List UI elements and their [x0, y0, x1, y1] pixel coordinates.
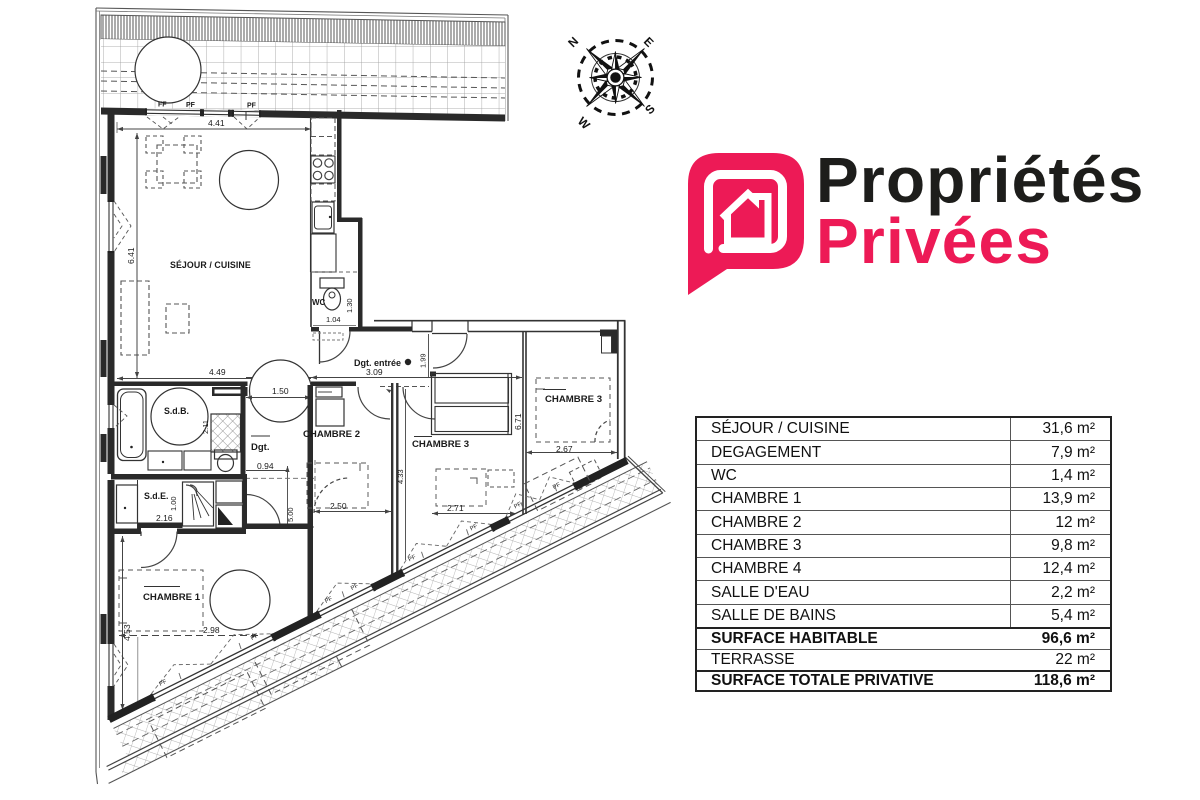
- svg-text:3.09: 3.09: [366, 367, 383, 377]
- svg-text:FF: FF: [158, 102, 167, 109]
- svg-text:CHAMBRE 3: CHAMBRE 3: [545, 394, 602, 405]
- svg-text:2.71: 2.71: [447, 503, 464, 513]
- svg-text:1.30: 1.30: [345, 298, 354, 313]
- svg-text:PF: PF: [469, 523, 479, 532]
- svg-text:4.49: 4.49: [209, 367, 226, 377]
- svg-text:6.71: 6.71: [513, 413, 523, 430]
- svg-text:PF: PF: [250, 633, 260, 642]
- svg-text:PF: PF: [324, 596, 334, 605]
- svg-text:2.67: 2.67: [556, 444, 573, 454]
- svg-text:PF: PF: [158, 679, 168, 688]
- svg-text:W: W: [575, 114, 593, 132]
- svg-text:PF: PF: [513, 501, 523, 510]
- svg-text:SÉJOUR / CUISINE: SÉJOUR / CUISINE: [170, 260, 251, 270]
- svg-text:N: N: [565, 34, 581, 50]
- svg-text:PF: PF: [186, 102, 196, 109]
- svg-text:E: E: [641, 34, 657, 50]
- svg-text:2.50: 2.50: [330, 501, 347, 511]
- svg-text:0.94: 0.94: [257, 461, 274, 471]
- svg-text:PF: PF: [247, 103, 257, 110]
- svg-text:4.33: 4.33: [396, 469, 405, 484]
- svg-text:CHAMBRE 1: CHAMBRE 1: [143, 592, 201, 603]
- svg-text:CHAMBRE 2: CHAMBRE 2: [303, 429, 360, 440]
- svg-text:1.50: 1.50: [272, 386, 289, 396]
- svg-text:5.00: 5.00: [286, 507, 295, 522]
- svg-text:4.41: 4.41: [208, 118, 225, 128]
- svg-text:1.00: 1.00: [169, 496, 178, 511]
- svg-text:S.d.E.: S.d.E.: [144, 491, 168, 501]
- svg-text:6.41: 6.41: [126, 247, 136, 264]
- svg-text:4.53: 4.53: [122, 624, 132, 641]
- svg-text:2.98: 2.98: [203, 625, 220, 635]
- svg-text:1.99: 1.99: [419, 353, 428, 368]
- svg-text:S: S: [642, 102, 658, 118]
- svg-text:WC: WC: [312, 298, 326, 307]
- svg-text:S.d.B.: S.d.B.: [164, 406, 189, 416]
- svg-text:Dgt.: Dgt.: [251, 442, 269, 453]
- svg-text:PF: PF: [552, 482, 562, 491]
- svg-text:CHAMBRE 3: CHAMBRE 3: [412, 439, 469, 450]
- svg-text:1.04: 1.04: [326, 315, 341, 324]
- svg-text:2.16: 2.16: [156, 513, 173, 523]
- svg-text:PF: PF: [350, 583, 360, 592]
- svg-text:2.11: 2.11: [201, 420, 210, 434]
